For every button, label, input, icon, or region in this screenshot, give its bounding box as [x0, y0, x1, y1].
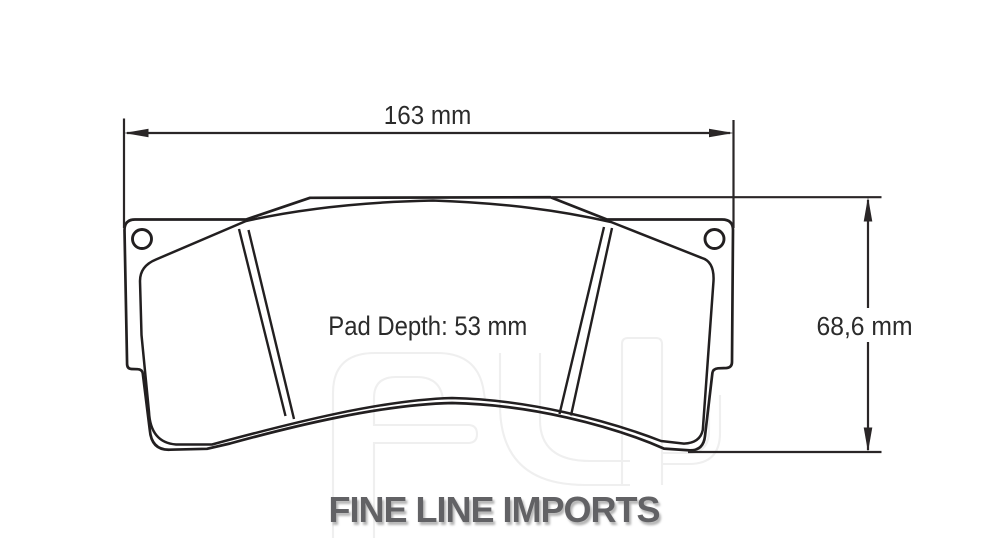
svg-text:68,6 mm: 68,6 mm	[817, 313, 913, 341]
svg-text:163 mm: 163 mm	[384, 102, 472, 130]
svg-text:Pad Depth: 53 mm: Pad Depth: 53 mm	[328, 311, 527, 341]
